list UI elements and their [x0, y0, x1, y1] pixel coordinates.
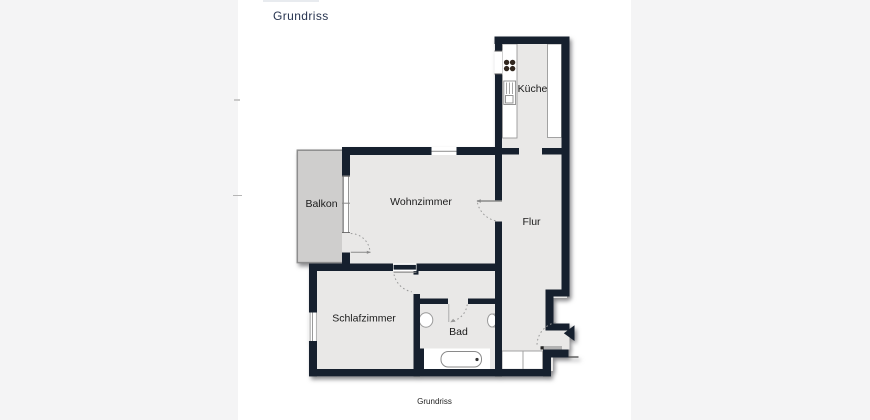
- svg-text:Flur: Flur: [522, 216, 541, 228]
- svg-text:Balkon: Balkon: [305, 198, 337, 210]
- svg-text:Schlafzimmer: Schlafzimmer: [332, 313, 396, 325]
- svg-text:Küche: Küche: [518, 83, 548, 95]
- svg-text:Wohnzimmer: Wohnzimmer: [390, 196, 452, 208]
- svg-text:Bad: Bad: [449, 326, 468, 338]
